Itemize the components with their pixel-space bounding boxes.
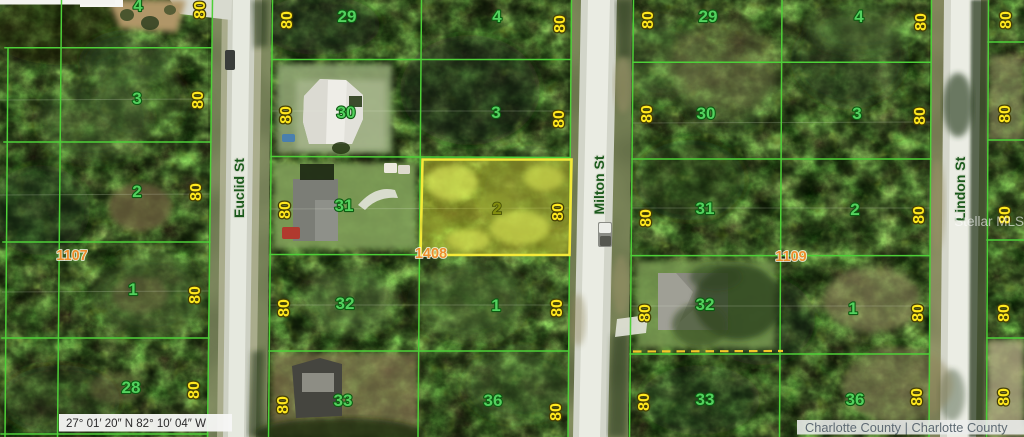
svg-text:80: 80 <box>910 304 927 322</box>
svg-text:Milton St: Milton St <box>591 155 607 214</box>
svg-text:80: 80 <box>549 299 566 317</box>
svg-text:Euclid St: Euclid St <box>231 158 247 218</box>
svg-text:80: 80 <box>278 106 295 124</box>
svg-text:80: 80 <box>551 110 568 128</box>
svg-text:3: 3 <box>132 89 141 108</box>
svg-text:31: 31 <box>335 196 354 215</box>
svg-text:4: 4 <box>854 7 864 26</box>
svg-text:80: 80 <box>192 1 209 19</box>
svg-text:80: 80 <box>186 381 203 399</box>
svg-text:33: 33 <box>334 391 353 410</box>
svg-text:Charlotte County | Charlotte C: Charlotte County | Charlotte County <box>805 420 1008 435</box>
svg-text:80: 80 <box>548 403 565 421</box>
svg-text:1: 1 <box>128 280 137 299</box>
svg-text:80: 80 <box>636 393 653 411</box>
svg-text:80: 80 <box>909 388 926 406</box>
svg-text:80: 80 <box>913 13 930 31</box>
svg-text:80: 80 <box>639 105 656 123</box>
svg-text:30: 30 <box>697 104 716 123</box>
svg-text:80: 80 <box>638 209 655 227</box>
svg-text:80: 80 <box>637 304 654 322</box>
svg-text:80: 80 <box>911 206 928 224</box>
svg-text:4: 4 <box>133 0 143 15</box>
svg-text:29: 29 <box>699 7 718 26</box>
svg-text:27° 01′ 20″ N 82° 10′ 04″ W: 27° 01′ 20″ N 82° 10′ 04″ W <box>66 418 206 430</box>
svg-text:80: 80 <box>276 299 293 317</box>
svg-text:80: 80 <box>277 201 294 219</box>
svg-text:1107: 1107 <box>56 248 87 264</box>
svg-text:80: 80 <box>997 105 1014 123</box>
svg-text:2: 2 <box>132 182 141 201</box>
svg-text:2: 2 <box>492 199 501 218</box>
svg-text:36: 36 <box>484 391 503 410</box>
svg-text:3: 3 <box>491 103 500 122</box>
svg-text:4: 4 <box>492 7 502 26</box>
svg-text:80: 80 <box>279 11 296 29</box>
svg-text:3: 3 <box>852 104 861 123</box>
svg-text:36: 36 <box>846 390 865 409</box>
svg-text:80: 80 <box>275 396 292 414</box>
svg-text:32: 32 <box>336 294 355 313</box>
svg-text:28: 28 <box>122 378 141 397</box>
svg-text:80: 80 <box>190 91 207 109</box>
svg-text:1109: 1109 <box>775 249 806 265</box>
svg-text:30: 30 <box>337 103 356 122</box>
svg-text:80: 80 <box>998 11 1015 29</box>
svg-text:31: 31 <box>696 199 715 218</box>
svg-text:1408: 1408 <box>415 246 447 262</box>
svg-text:80: 80 <box>640 11 657 29</box>
svg-text:33: 33 <box>696 390 715 409</box>
svg-text:2: 2 <box>850 200 859 219</box>
svg-text:80: 80 <box>996 388 1013 406</box>
svg-text:Lindon St: Lindon St <box>952 156 968 221</box>
svg-text:80: 80 <box>912 107 929 125</box>
svg-text:1: 1 <box>848 299 857 318</box>
svg-text:80: 80 <box>187 286 204 304</box>
svg-text:80: 80 <box>550 203 567 221</box>
svg-text:32: 32 <box>696 295 715 314</box>
svg-text:29: 29 <box>338 7 357 26</box>
svg-text:1: 1 <box>491 296 500 315</box>
svg-text:80: 80 <box>188 183 205 201</box>
svg-text:80: 80 <box>552 15 569 33</box>
svg-text:80: 80 <box>996 304 1013 322</box>
svg-text:Stellar MLS: Stellar MLS <box>954 214 1024 229</box>
